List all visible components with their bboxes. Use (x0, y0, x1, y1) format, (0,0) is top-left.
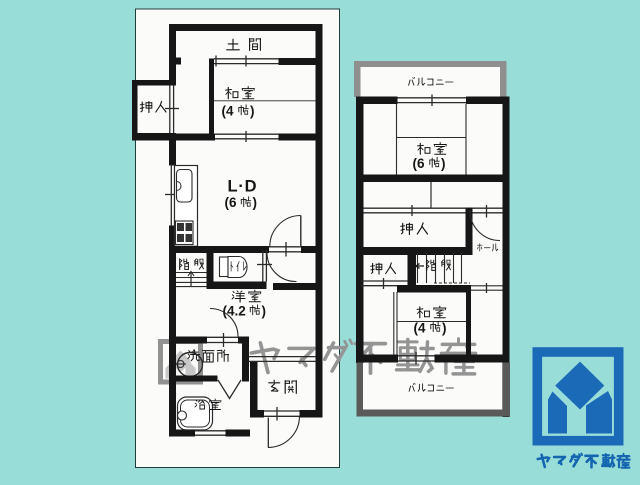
svg-text:(4: (4 (222, 104, 234, 119)
svg-text:): ) (441, 156, 446, 171)
svg-text:): ) (253, 195, 258, 210)
svg-text:(4.2: (4.2 (223, 304, 246, 319)
svg-text:(6: (6 (225, 195, 237, 210)
svg-text:(6: (6 (413, 156, 425, 171)
svg-text:): ) (262, 304, 267, 319)
svg-text:L·D: L·D (228, 178, 258, 196)
svg-text:(4: (4 (414, 321, 426, 336)
svg-text:): ) (250, 104, 255, 119)
svg-text:): ) (442, 321, 447, 336)
